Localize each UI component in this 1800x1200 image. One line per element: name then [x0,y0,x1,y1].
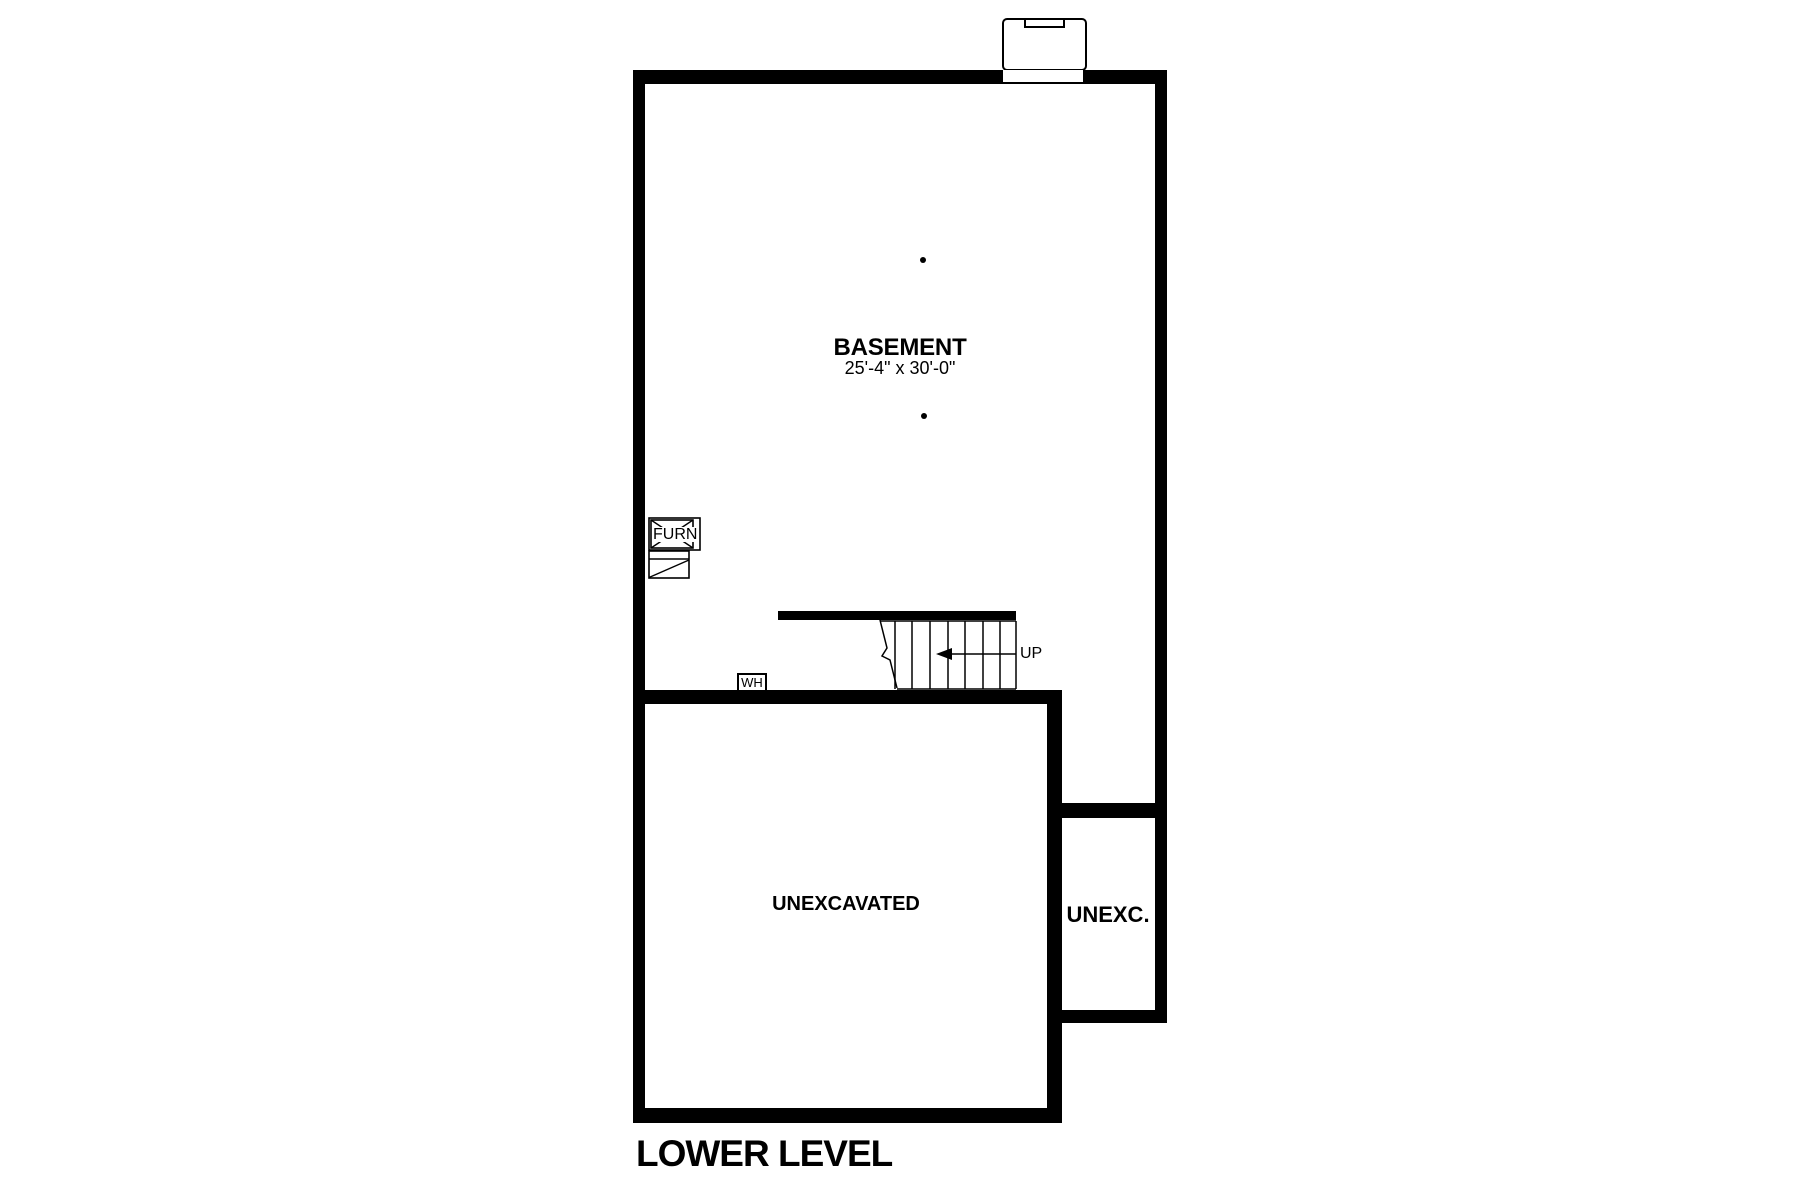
water-heater-box: WH [737,673,767,692]
support-column-dot-lower [921,413,927,419]
floor-plan-sheet: UP FURN WH BASEMENT 25'-4" x 30'-0" UNEX… [0,0,1800,1200]
support-column-dot-upper [920,257,926,263]
stair-arrow-head [936,648,952,660]
wall-top-left-segment [633,70,1003,84]
stairs-up-label: UP [1020,645,1042,662]
basement-dimensions: 25'-4" x 30'-0" [750,358,1050,378]
plan-title: LOWER LEVEL [636,1134,892,1174]
basement-window-opening [1003,70,1083,84]
wall-right [1155,70,1167,1023]
furnace-label: FURN [652,527,698,542]
window-well-step [1024,18,1065,28]
water-heater-label: WH [741,675,763,690]
wall-left [633,70,645,1123]
unexcavated-label: UNEXCAVATED [696,893,996,915]
wall-unexc-top [1047,803,1167,818]
unexc-label: UNEXC. [1058,903,1158,927]
wall-unexcavated-bottom [633,1108,1062,1123]
wall-unexc-bottom [1047,1010,1167,1023]
